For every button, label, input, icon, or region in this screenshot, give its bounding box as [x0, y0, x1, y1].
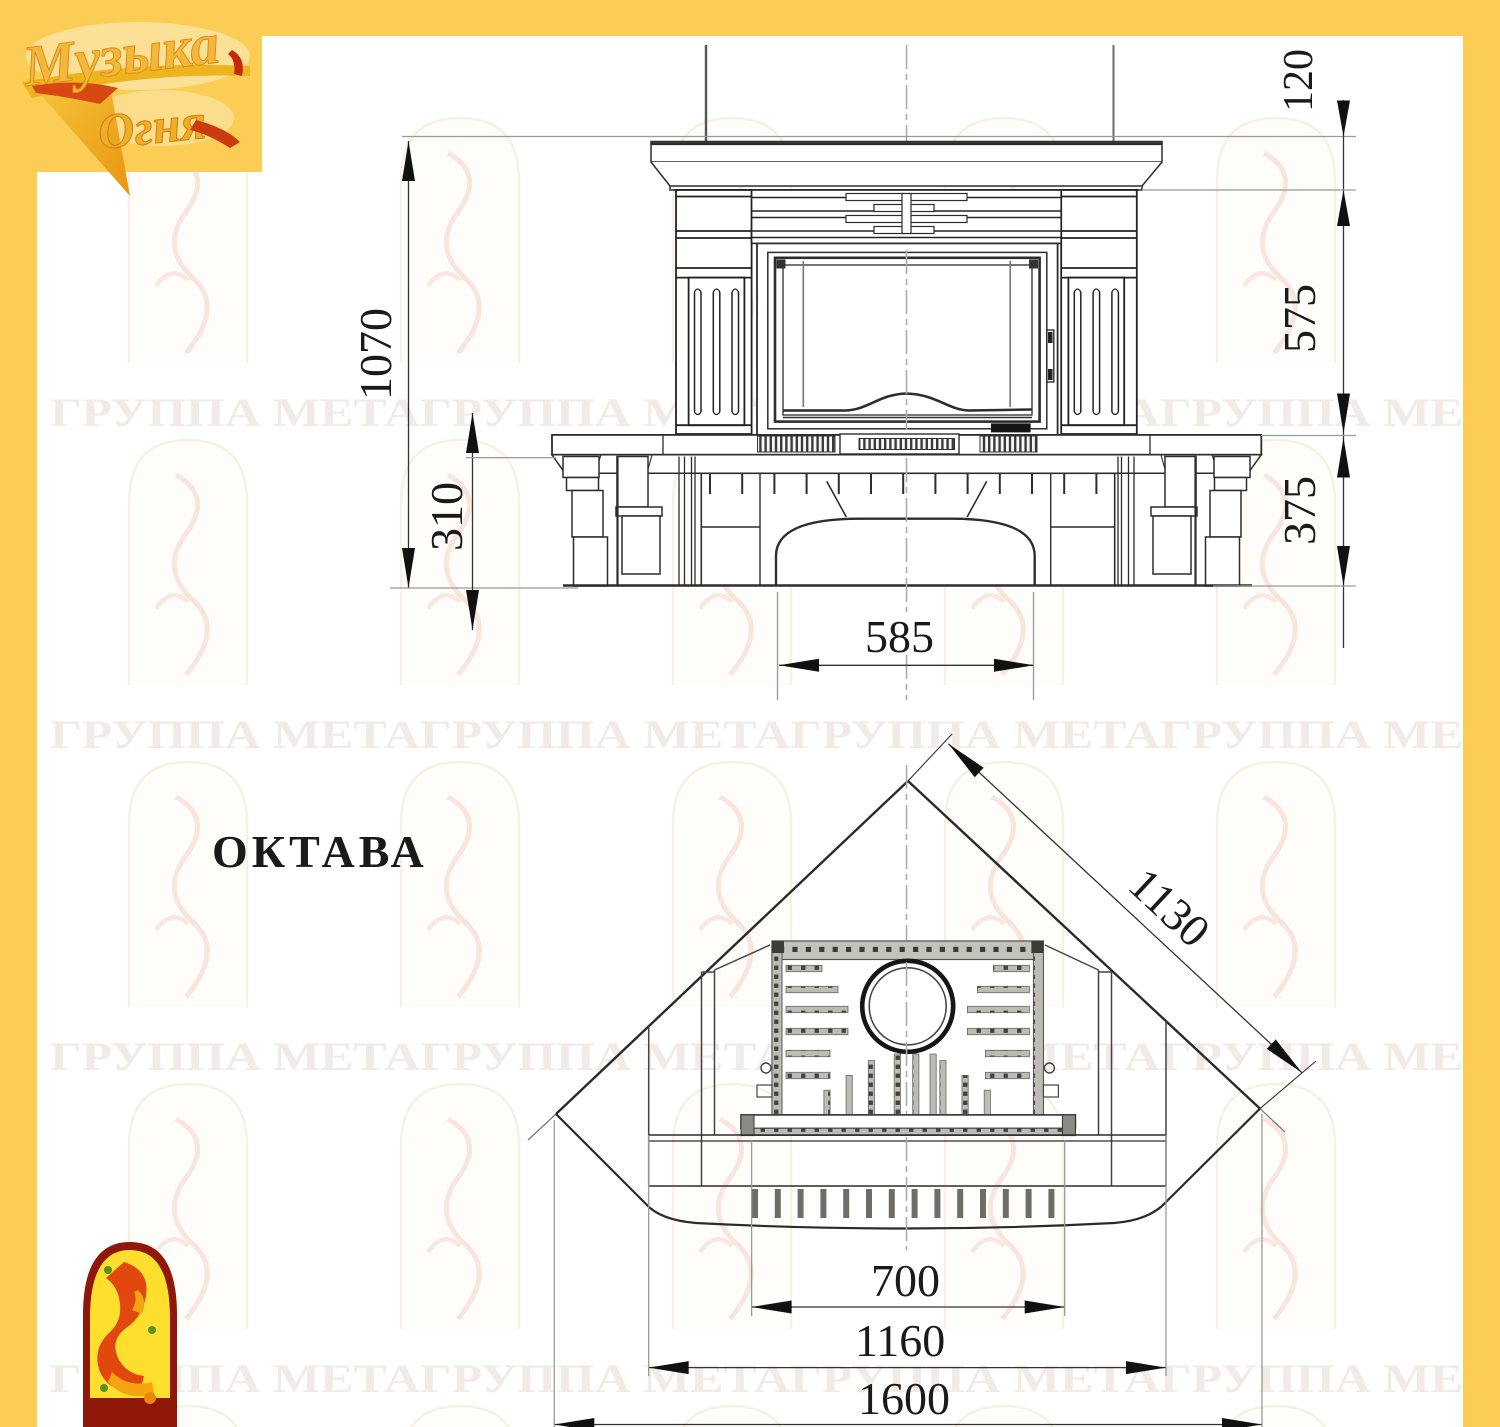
svg-text:Огня: Огня	[95, 93, 208, 160]
svg-text:1600: 1600	[858, 1373, 950, 1424]
svg-text:ОКТАВА: ОКТАВА	[212, 826, 428, 877]
svg-text:120: 120	[1276, 49, 1322, 112]
svg-text:310: 310	[421, 482, 472, 551]
svg-text:700: 700	[871, 1255, 940, 1306]
svg-text:585: 585	[865, 611, 934, 662]
svg-text:ГРУППА МЕТАГРУППА МЕТАГРУППА М: ГРУППА МЕТАГРУППА МЕТАГРУППА МЕТАГРУППА …	[50, 712, 1500, 757]
svg-text:1070: 1070	[350, 308, 401, 400]
svg-text:ГРУППА МЕТАГРУППА МЕТАГРУППА М: ГРУППА МЕТАГРУППА МЕТАГРУППА МЕТАГРУППА …	[50, 1356, 1500, 1401]
svg-text:1160: 1160	[855, 1315, 945, 1366]
svg-text:375: 375	[1274, 476, 1325, 545]
svg-text:575: 575	[1274, 284, 1325, 353]
